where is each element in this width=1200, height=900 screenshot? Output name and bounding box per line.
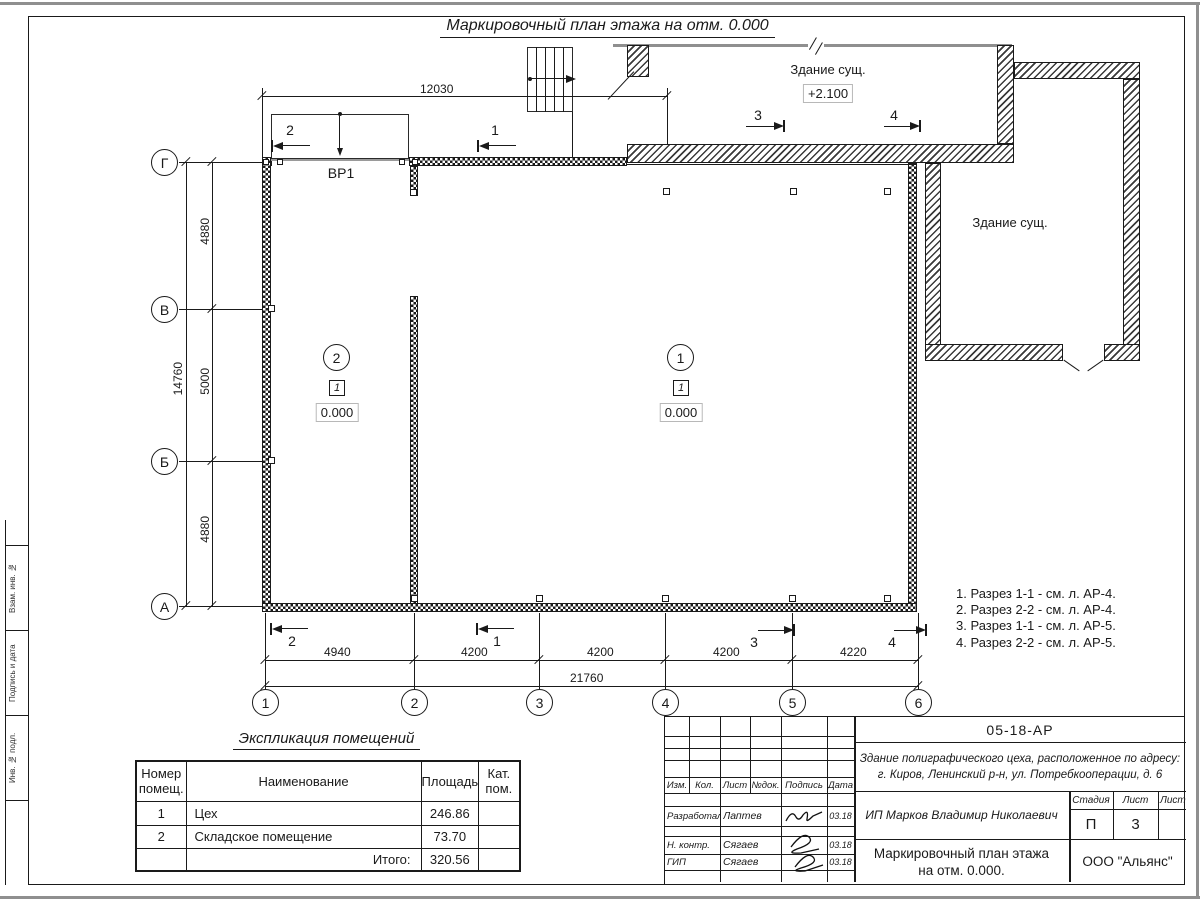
- frame-strip-divider: [5, 545, 28, 546]
- axis-circle-col: 2: [401, 689, 428, 716]
- frame-strip-label: Инв. № подл.: [8, 718, 17, 798]
- schedule-cell: [136, 848, 186, 871]
- room-schedule-table: Номер помещ. Наименование Площадь Кат. п…: [135, 760, 521, 872]
- stair-direction-arrow: [566, 75, 576, 83]
- gate-jamb-marker: [263, 159, 269, 165]
- stair-step: [536, 47, 537, 112]
- room-number-circle: 2: [323, 344, 350, 371]
- dim-left-label: 4880: [198, 218, 212, 245]
- schedule-cell: 1: [136, 801, 186, 825]
- section-arrow: [272, 625, 282, 633]
- project-description: Здание полиграфического цеха, расположен…: [857, 742, 1183, 791]
- signature: [783, 807, 825, 825]
- existing-top-elevation: +2.100: [803, 84, 853, 103]
- signature-role: ГИП: [667, 854, 720, 870]
- existing-right-label: Здание сущ.: [960, 215, 1060, 230]
- gate-jamb-marker: [277, 159, 283, 165]
- axis-line: [414, 613, 415, 689]
- gate-label: ВР1: [316, 165, 366, 181]
- schedule-total-label: Итого:: [186, 848, 421, 871]
- titleblock-line: [665, 736, 854, 737]
- column-marker: [662, 595, 669, 602]
- section-arrow: [479, 142, 489, 150]
- stage-value: П: [1069, 809, 1113, 839]
- column-marker: [411, 595, 418, 602]
- wall-bottom: [262, 603, 917, 612]
- frame-strip-label: Подпись и дата: [8, 633, 17, 713]
- drawing-title: Маркировочный план этажа на отм. 0.000.: [854, 839, 1069, 884]
- section-arrow-bar: [270, 623, 272, 635]
- wall-left: [262, 157, 271, 612]
- section-arrow-line: [283, 145, 310, 146]
- titleblock-col-header: Лист: [720, 777, 750, 793]
- stair-enclosure-line: [572, 112, 573, 158]
- titleblock-line: [665, 826, 854, 827]
- sheet-value: 3: [1113, 809, 1158, 839]
- dim-bottom-label: 4200: [587, 645, 614, 659]
- project-description-line: г. Киров, Ленинский р-н, ул. Потребкоопе…: [878, 767, 1162, 783]
- column-marker: [663, 188, 670, 195]
- dim-left-label: 4880: [198, 516, 212, 543]
- stair-direction-dot: [528, 77, 532, 81]
- project-description-line: Здание полиграфического цеха, расположен…: [860, 751, 1180, 767]
- schedule-header: Площадь: [421, 761, 479, 801]
- drawing-title-line: Маркировочный план этажа: [874, 845, 1049, 862]
- gate-arrow-line: [339, 116, 340, 148]
- axis-circle-col: 1: [252, 689, 279, 716]
- titleblock-col-header: Кол.: [689, 777, 720, 793]
- section-arrow-line: [746, 126, 776, 127]
- titleblock-line: [665, 760, 854, 761]
- frame-strip-label: Взам. инв. №: [8, 548, 17, 628]
- section-arrow-line: [894, 630, 918, 631]
- schedule-cell: 73.70: [421, 825, 479, 848]
- gate-jamb-marker: [412, 159, 418, 165]
- drawing-title-line: на отм. 0.000.: [918, 862, 1004, 879]
- signature-role: Разработал: [667, 806, 720, 826]
- note-line: 1. Разрез 1-1 - см. л. АР-4.: [956, 586, 1116, 602]
- sheet-label: Лист: [1113, 791, 1158, 809]
- titleblock-line: [720, 717, 721, 882]
- schedule-cell: [479, 825, 520, 848]
- dim-left-total-label: 14760: [171, 362, 185, 395]
- column-marker: [268, 457, 275, 464]
- wall-top: [409, 157, 627, 166]
- titleblock-col-header: Изм.: [665, 777, 689, 793]
- dim-extension: [262, 88, 263, 158]
- dim-line-left-segments: [212, 162, 213, 607]
- axis-line: [179, 461, 263, 462]
- dim-left-label: 5000: [198, 368, 212, 395]
- stair-step: [554, 47, 555, 112]
- frame-strip-line: [5, 520, 6, 885]
- document-number: 05-18-АР: [854, 717, 1186, 742]
- dim-line-bottom-total: [265, 686, 919, 687]
- gate-arrow-head: [337, 148, 343, 156]
- existing-right-wall-right: [1123, 79, 1140, 361]
- company-name: ООО "Альянс": [1069, 839, 1186, 884]
- signature-name: Сягаев: [723, 836, 779, 854]
- axis-line: [265, 613, 266, 689]
- axis-line: [539, 613, 540, 689]
- section-notes: 1. Разрез 1-1 - см. л. АР-4. 2. Разрез 2…: [956, 586, 1116, 651]
- signature-name: Сягаев: [723, 854, 779, 870]
- frame-strip-divider: [5, 800, 28, 801]
- existing-right-wall-top: [1014, 62, 1140, 79]
- signature-role: Н. контр.: [667, 836, 720, 854]
- titleblock-line: [665, 793, 854, 794]
- signature-date: 03.18: [827, 854, 854, 870]
- column-marker: [790, 188, 797, 195]
- section-marker-label: 4: [886, 107, 902, 123]
- note-line: 3. Разрез 1-1 - см. л. АР-5.: [956, 618, 1116, 634]
- axis-line: [792, 613, 793, 689]
- existing-right-wall-bottom2: [1104, 344, 1140, 361]
- dim-line-bottom-segments: [265, 660, 919, 661]
- drawing-sheet: Взам. инв. № Подпись и дата Инв. № подл.…: [0, 0, 1200, 900]
- table-row: 1 Цех 246.86: [136, 801, 520, 825]
- title-block: Изм. Кол. Лист №док. Подпись Дата Разраб…: [664, 716, 1185, 885]
- gate-arrow-dot: [338, 112, 342, 116]
- existing-right-wall-left: [925, 163, 941, 361]
- table-row: 2 Складское помещение 73.70: [136, 825, 520, 848]
- column-marker: [536, 595, 543, 602]
- page-title-wrap: Маркировочный план этажа на отм. 0.000: [30, 17, 1185, 38]
- axis-circle-row: Г: [151, 149, 178, 176]
- axis-line: [665, 613, 666, 689]
- titleblock-line: [665, 748, 854, 749]
- note-line: 2. Разрез 2-2 - см. л. АР-4.: [956, 602, 1116, 618]
- dim-bottom-label: 4200: [713, 645, 740, 659]
- gate-jamb-marker: [399, 159, 405, 165]
- column-marker: [884, 188, 891, 195]
- section-arrow-bar: [783, 120, 785, 132]
- client-name: ИП Марков Владимир Николаевич: [854, 791, 1069, 839]
- dim-line-top: [262, 96, 667, 97]
- section-arrow-line: [489, 145, 516, 146]
- existing-right-wall-bottom: [925, 344, 1063, 361]
- dim-bottom-label: 4940: [324, 645, 351, 659]
- schedule-header: Наименование: [186, 761, 421, 801]
- section-arrow: [273, 142, 283, 150]
- stair-direction-line: [530, 78, 568, 79]
- axis-circle-col: 4: [652, 689, 679, 716]
- axis-circle-col: 6: [905, 689, 932, 716]
- dim-bottom-total-label: 21760: [570, 671, 603, 685]
- signature-date: 03.18: [827, 806, 854, 826]
- dim-bottom-label: 4220: [840, 645, 867, 659]
- existing-top-label: Здание сущ.: [778, 62, 878, 77]
- dim-line-left-total: [186, 162, 187, 607]
- titleblock-col-header: Подпись: [781, 777, 827, 793]
- section-arrow: [478, 625, 488, 633]
- shared-wall-line: [627, 164, 917, 166]
- section-marker-label: 4: [884, 634, 900, 650]
- partition-wall: [410, 296, 418, 604]
- frame-strip-divider: [5, 715, 28, 716]
- section-arrow-bar: [925, 624, 927, 636]
- axis-circle-col: 3: [526, 689, 553, 716]
- schedule-title: Экспликация помещений: [233, 730, 421, 750]
- schedule-header: Кат. пом.: [479, 761, 520, 801]
- signature-name: Лаптев: [723, 806, 779, 826]
- sheets-label: Листов: [1158, 791, 1186, 809]
- axis-circle-row: Б: [151, 448, 178, 475]
- section-marker-label: 2: [282, 122, 298, 138]
- column-marker: [789, 595, 796, 602]
- room-number-circle: 1: [667, 344, 694, 371]
- signature-date: 03.18: [827, 836, 854, 854]
- section-arrow-line: [758, 630, 786, 631]
- titleblock-col-header: Дата: [827, 777, 854, 793]
- table-row: Итого: 320.56: [136, 848, 520, 871]
- section-arrow-bar: [476, 623, 478, 635]
- sheet-edge-right: [1196, 2, 1199, 898]
- schedule-cell: 246.86: [421, 801, 479, 825]
- dim-bottom-label: 4200: [461, 645, 488, 659]
- frame-strip-divider: [5, 630, 28, 631]
- schedule-cell: [479, 848, 520, 871]
- axis-circle-row: В: [151, 296, 178, 323]
- existing-top-wall-bottom: [627, 144, 1014, 163]
- dim-top-label: 12030: [420, 82, 453, 96]
- room-type-box: 1: [673, 380, 689, 396]
- signature: [783, 829, 827, 873]
- note-line: 4. Разрез 2-2 - см. л. АР-5.: [956, 635, 1116, 651]
- schedule-title-wrap: Экспликация помещений: [135, 730, 518, 750]
- column-marker: [268, 305, 275, 312]
- schedule-cell: Складское помещение: [186, 825, 421, 848]
- schedule-total-value: 320.56: [421, 848, 479, 871]
- section-arrow-line: [884, 126, 912, 127]
- section-marker-label: 2: [284, 633, 300, 649]
- sheet-edge-bottom: [0, 896, 1200, 899]
- section-arrow-bar: [793, 624, 795, 636]
- column-marker: [410, 189, 417, 196]
- room-elevation: 0.000: [660, 403, 703, 422]
- sheets-value: [1158, 809, 1186, 839]
- axis-line: [918, 613, 919, 689]
- room-type-box: 1: [329, 380, 345, 396]
- axis-line: [179, 309, 263, 310]
- schedule-cell: 2: [136, 825, 186, 848]
- stair-step: [545, 47, 546, 112]
- section-marker-label: 1: [489, 633, 505, 649]
- page-title: Маркировочный план этажа на отм. 0.000: [440, 17, 774, 38]
- existing-top-wall-left-stub: [627, 45, 649, 77]
- section-marker-label: 3: [750, 107, 766, 123]
- wall-right: [908, 163, 917, 612]
- titleblock-col-header: №док.: [750, 777, 781, 793]
- stair-step: [563, 47, 564, 112]
- stage-label: Стадия: [1069, 791, 1113, 809]
- schedule-header: Номер помещ.: [136, 761, 186, 801]
- schedule-cell: [479, 801, 520, 825]
- section-marker-label: 1: [487, 122, 503, 138]
- axis-circle-row: А: [151, 593, 178, 620]
- axis-line: [179, 606, 263, 607]
- titleblock-line: [781, 717, 782, 882]
- room-elevation: 0.000: [316, 403, 359, 422]
- sheet-edge-top: [0, 2, 1200, 5]
- axis-circle-col: 5: [779, 689, 806, 716]
- schedule-cell: Цех: [186, 801, 421, 825]
- axis-line: [179, 162, 263, 163]
- column-marker: [884, 595, 891, 602]
- existing-top-wall-right: [997, 45, 1014, 144]
- section-arrow-bar: [919, 120, 921, 132]
- section-marker-label: 3: [746, 634, 762, 650]
